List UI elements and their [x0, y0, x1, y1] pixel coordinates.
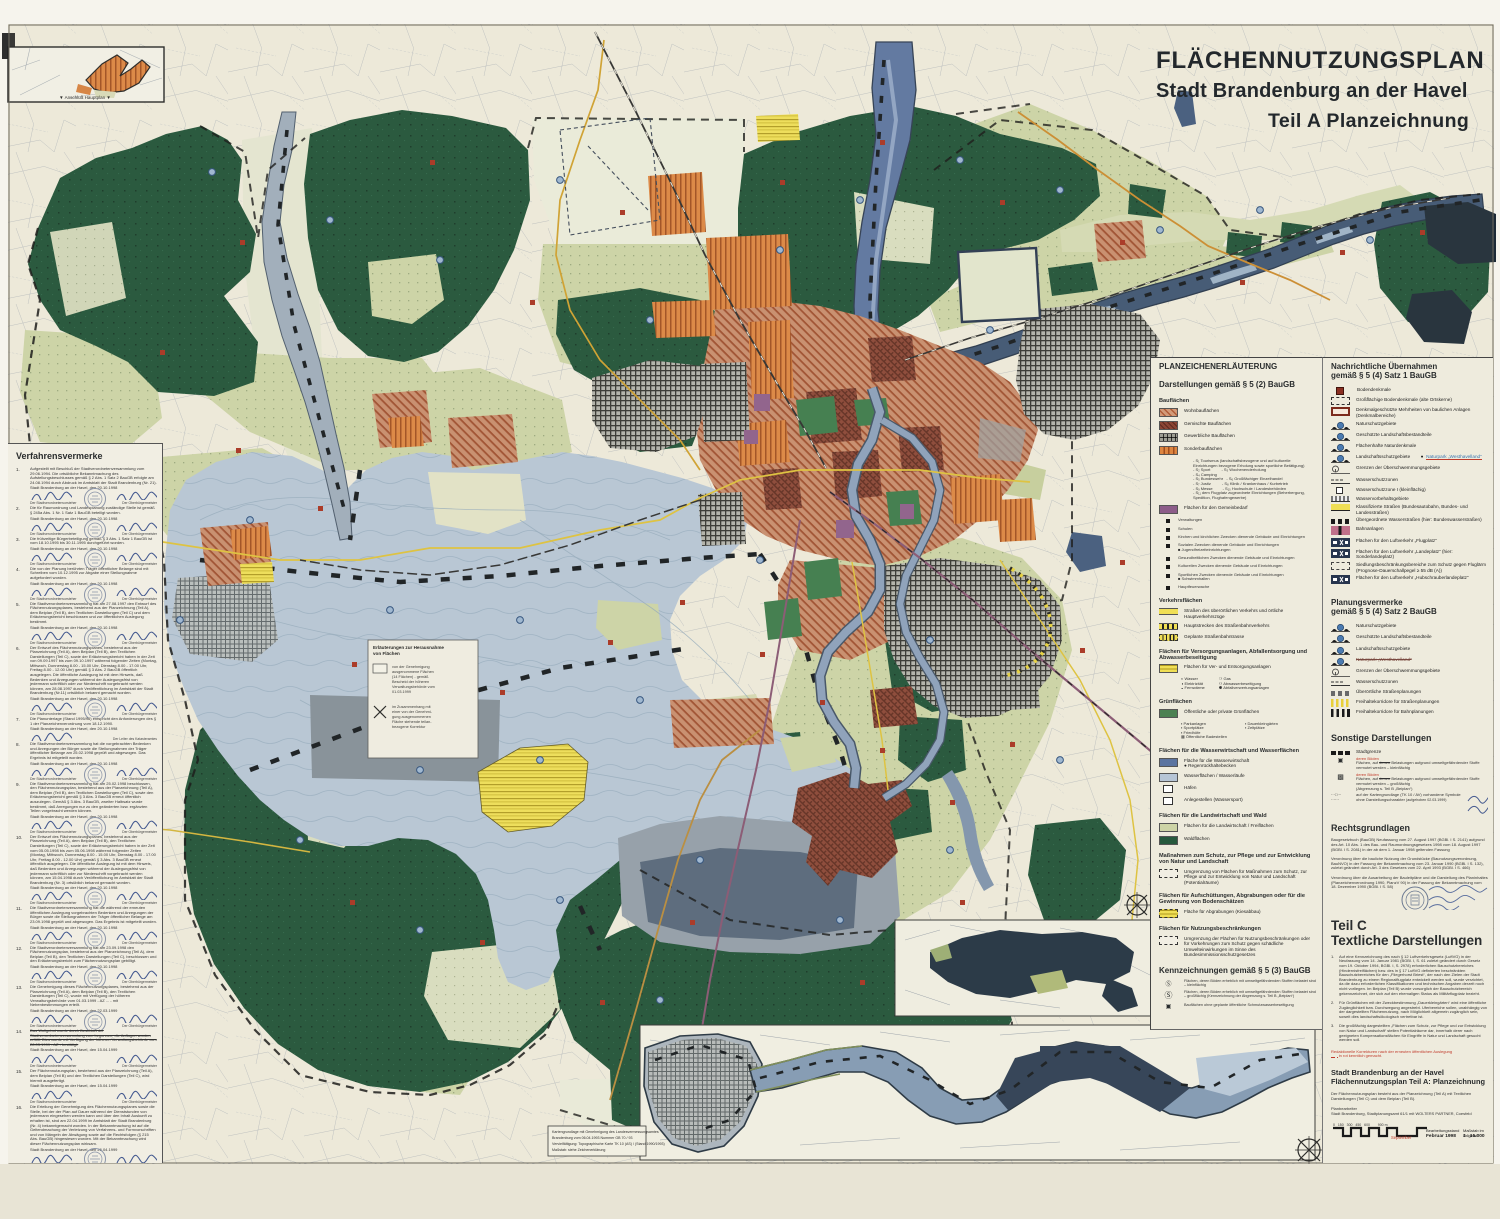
svg-text:0 150 300 450 600: 0 150 300 450 600 900 m — [1333, 1123, 1388, 1127]
